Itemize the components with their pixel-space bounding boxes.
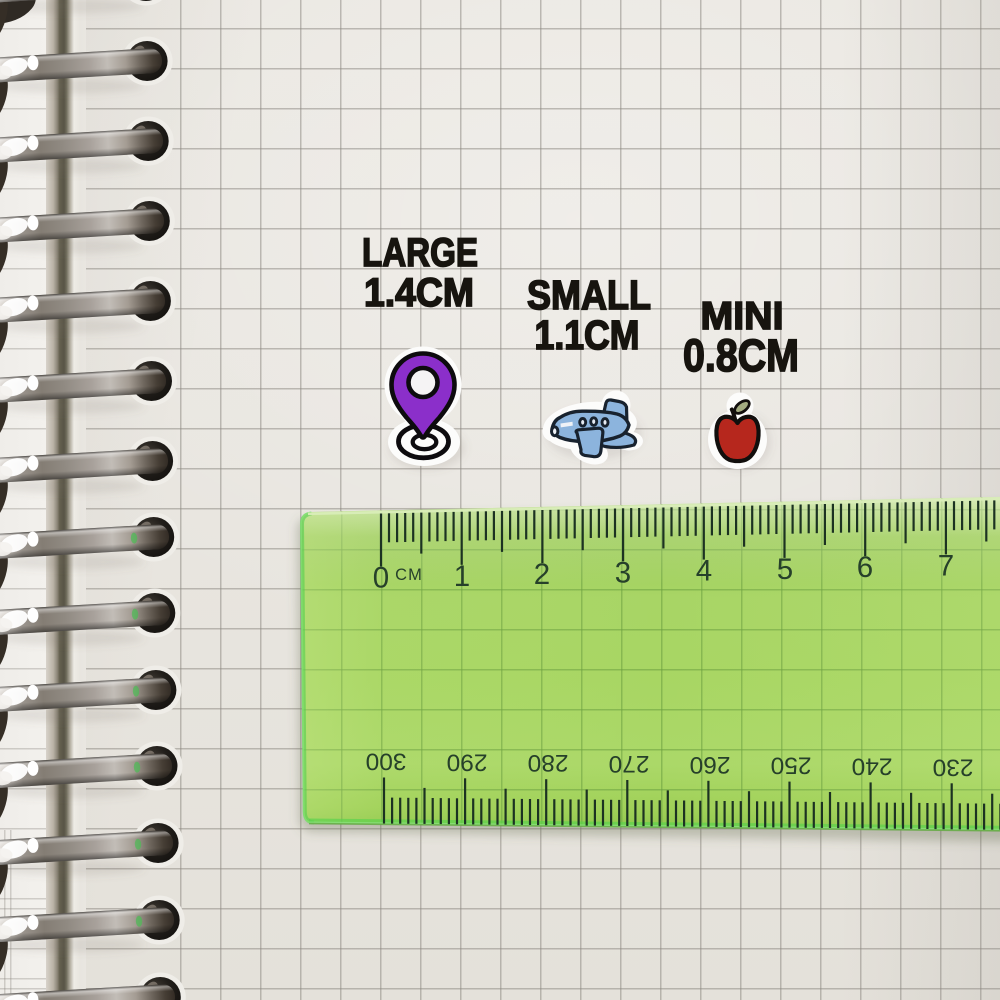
svg-text:CM: CM <box>395 566 423 584</box>
svg-text:1.4CM: 1.4CM <box>364 271 474 315</box>
svg-text:230: 230 <box>933 753 974 780</box>
svg-text:7: 7 <box>938 549 954 582</box>
svg-text:290: 290 <box>447 748 488 775</box>
svg-text:250: 250 <box>771 752 812 779</box>
svg-text:LARGE: LARGE <box>362 231 478 275</box>
svg-text:280: 280 <box>528 749 569 776</box>
svg-text:240: 240 <box>852 752 893 779</box>
svg-text:2: 2 <box>534 558 550 591</box>
svg-text:3: 3 <box>615 556 631 589</box>
svg-text:270: 270 <box>609 750 650 777</box>
svg-text:0.8CM: 0.8CM <box>683 330 799 381</box>
svg-text:5: 5 <box>777 553 793 586</box>
svg-text:0: 0 <box>373 562 389 595</box>
svg-text:300: 300 <box>366 748 407 775</box>
svg-text:4: 4 <box>696 555 712 588</box>
svg-text:1: 1 <box>454 560 470 593</box>
svg-text:6: 6 <box>857 551 873 584</box>
svg-text:1.1CM: 1.1CM <box>535 312 640 358</box>
svg-text:260: 260 <box>690 751 731 778</box>
